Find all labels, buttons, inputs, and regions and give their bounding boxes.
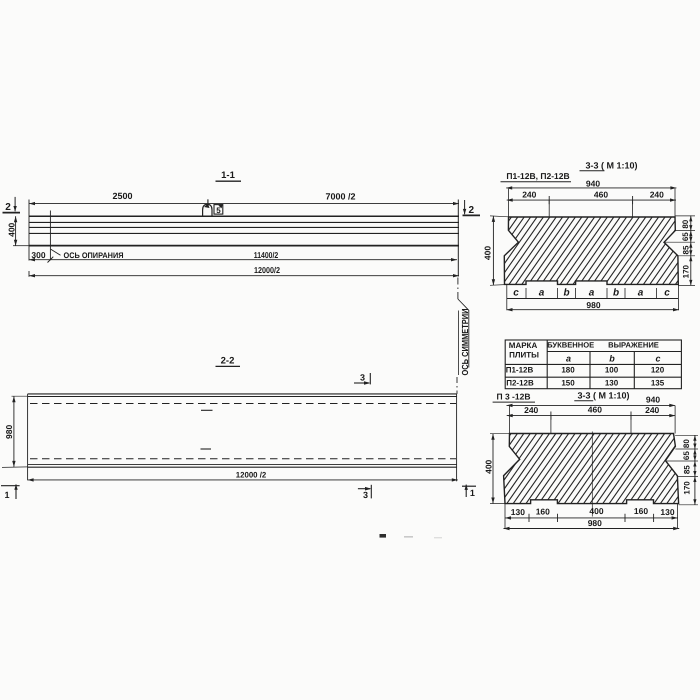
svg-text:240: 240	[522, 189, 536, 199]
svg-text:ОСЬ СИММЕТРИИ: ОСЬ СИММЕТРИИ	[460, 309, 470, 376]
svg-text:940: 940	[586, 178, 600, 188]
svg-text:130: 130	[511, 507, 525, 517]
svg-text:130: 130	[660, 507, 674, 517]
svg-text:400: 400	[483, 459, 493, 473]
svg-text:12000/2: 12000/2	[254, 265, 280, 275]
svg-text:3-3 ( М 1:10): 3-3 ( М 1:10)	[585, 161, 637, 171]
svg-text:7000 /2: 7000 /2	[325, 192, 355, 202]
svg-text:12000 /2: 12000 /2	[236, 471, 267, 480]
svg-text:a: a	[566, 354, 571, 364]
svg-text:2: 2	[469, 205, 475, 216]
svg-text:135: 135	[651, 378, 665, 387]
svg-text:400: 400	[6, 222, 16, 236]
svg-text:170: 170	[683, 481, 692, 495]
svg-text:85: 85	[681, 245, 690, 254]
svg-text:980: 980	[586, 300, 600, 310]
svg-text:1: 1	[4, 490, 9, 500]
svg-text:c: c	[664, 287, 670, 298]
svg-text:П2-12В: П2-12В	[506, 379, 534, 388]
svg-text:240: 240	[645, 405, 659, 415]
svg-text:80: 80	[681, 219, 690, 228]
svg-text:120: 120	[651, 365, 665, 374]
svg-text:3: 3	[363, 490, 368, 500]
svg-text:11400/2: 11400/2	[254, 250, 279, 260]
svg-text:ОСЬ ОПИРАНИЯ: ОСЬ ОПИРАНИЯ	[64, 251, 124, 260]
svg-text:100: 100	[605, 365, 619, 374]
svg-text:85: 85	[683, 465, 692, 474]
svg-text:2-2: 2-2	[221, 355, 235, 366]
svg-text:980: 980	[4, 425, 14, 439]
svg-text:460: 460	[588, 405, 602, 415]
svg-text:b: b	[563, 287, 569, 298]
svg-text:a: a	[589, 287, 595, 298]
svg-text:2: 2	[5, 202, 11, 213]
svg-text:160: 160	[536, 507, 550, 517]
svg-text:b: b	[609, 353, 615, 363]
svg-text:БУКВЕННОЕ: БУКВЕННОЕ	[547, 340, 594, 349]
svg-text:2500: 2500	[112, 191, 132, 201]
svg-text:ВЫРАЖЕНИЕ: ВЫРАЖЕНИЕ	[608, 341, 659, 350]
svg-text:65: 65	[681, 232, 690, 241]
svg-text:3: 3	[360, 372, 365, 382]
svg-text:400: 400	[589, 506, 603, 516]
svg-text:a: a	[638, 287, 644, 298]
svg-text:170: 170	[681, 264, 690, 278]
svg-text:240: 240	[524, 405, 538, 415]
svg-text:3-3 ( М 1:10): 3-3 ( М 1:10)	[577, 391, 629, 401]
svg-text:c: c	[513, 287, 519, 298]
svg-text:130: 130	[605, 378, 619, 387]
svg-text:160: 160	[634, 506, 648, 516]
svg-text:П1-12В: П1-12В	[506, 366, 534, 375]
svg-text:180: 180	[561, 365, 575, 374]
svg-text:МАРКА: МАРКА	[509, 341, 538, 350]
svg-text:П 3 -12В: П 3 -12В	[497, 392, 531, 402]
svg-text:240: 240	[650, 189, 664, 199]
svg-text:c: c	[655, 354, 660, 364]
svg-text:1-1: 1-1	[221, 170, 235, 181]
svg-text:980: 980	[588, 518, 602, 528]
svg-text:940: 940	[646, 395, 660, 405]
svg-text:65: 65	[682, 451, 691, 460]
svg-text:a: a	[539, 287, 545, 298]
svg-text:П1-12В, П2-12В: П1-12В, П2-12В	[506, 171, 569, 181]
svg-text:ПЛИТЫ: ПЛИТЫ	[509, 351, 539, 360]
svg-text:150: 150	[561, 378, 575, 387]
svg-text:300: 300	[31, 250, 45, 260]
svg-text:460: 460	[594, 189, 608, 199]
svg-text:80: 80	[682, 439, 691, 448]
svg-text:1: 1	[470, 488, 475, 498]
svg-text:400: 400	[483, 246, 493, 260]
svg-text:b: b	[613, 287, 619, 298]
